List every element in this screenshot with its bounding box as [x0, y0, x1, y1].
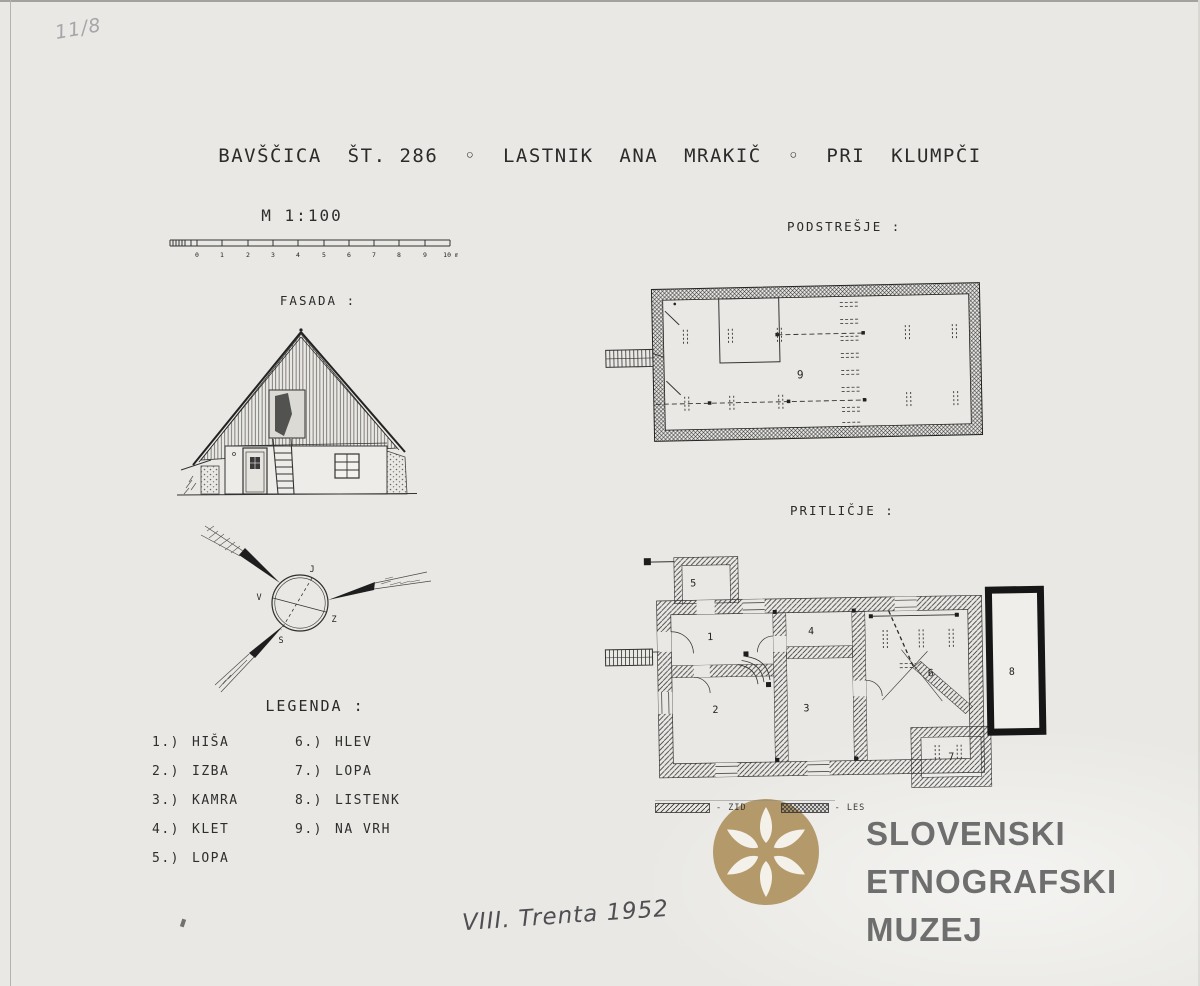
legend-item: 9.)NA VRH: [295, 815, 400, 844]
compass-rose: J V Z S: [195, 518, 435, 698]
legend-item: 5.)LOPA: [152, 844, 239, 873]
scale-tick: 0: [195, 251, 199, 259]
compass-letter-z: Z: [331, 615, 336, 625]
stone-corner-right: [387, 451, 407, 494]
attic-floor-plan: 9: [598, 270, 1003, 462]
legend-item-label: KLET: [192, 822, 229, 837]
legend-column-1: 1.)HIŠA 2.)IZBA 3.)KAMRA 4.)KLET 5.)LOPA: [152, 728, 239, 873]
scale-tick: 7: [372, 251, 376, 259]
room-number-3: 3: [803, 703, 809, 714]
legend-item-num: 6.): [295, 728, 335, 757]
legend-item-num: 9.): [295, 815, 335, 844]
materials-key: - ZID - LES: [655, 803, 865, 813]
compass-arrow-nw: [201, 526, 280, 583]
legend-item-num: 5.): [152, 844, 192, 873]
scale-tick: 8: [397, 251, 401, 259]
materials-key-line: [655, 800, 835, 801]
archive-number-handwritten: 11/8: [53, 14, 103, 44]
compass-arrow-e: [328, 572, 431, 600]
legend-item-label: LOPA: [335, 764, 372, 779]
groundfloor-section-label: PRITLIČJE :: [790, 503, 895, 518]
legend-item: 8.)LISTENK: [295, 786, 400, 815]
legend-item-num: 2.): [152, 757, 192, 786]
facade-section-label: FASADA :: [248, 293, 388, 308]
internal-walls: [671, 609, 974, 763]
legend-item-num: 1.): [152, 728, 192, 757]
ground-floor-plan: 1 2 3 4 5 6 7 8: [598, 543, 1063, 798]
legend-item: 1.)HIŠA: [152, 728, 239, 757]
les-label: - LES: [835, 803, 866, 813]
scanned-drawing-sheet: 11/8 BAVŠČICA ŠT. 286 ◦ LASTNIK ANA MRAK…: [0, 0, 1200, 986]
attic-section-label: PODSTREŠJE :: [787, 219, 901, 234]
room8-timber-walls: [988, 589, 1042, 732]
scale-tick: 9: [423, 251, 427, 259]
scale-tick: 1: [220, 251, 224, 259]
facade-drawing: [155, 318, 435, 503]
legend-item-label: LOPA: [192, 851, 229, 866]
legend-item: 7.)LOPA: [295, 757, 400, 786]
room-number-1: 1: [707, 632, 713, 643]
legend-item-label: LISTENK: [335, 793, 400, 808]
museum-line-1: SLOVENSKI: [866, 810, 1117, 858]
scale-bar: 0 1 2 3 4 5 6 7 8 9 10 m: [158, 231, 458, 263]
room-number-4: 4: [808, 626, 814, 637]
les-swatch: [781, 803, 829, 813]
legend-item: 4.)KLET: [152, 815, 239, 844]
facade-door: [243, 448, 267, 494]
facade-window: [335, 454, 359, 478]
zid-swatch: [655, 803, 710, 813]
field-note-handwritten: VIII. Trenta 1952: [461, 896, 669, 936]
scale-tick: 3: [271, 251, 275, 259]
legend-item: 3.)KAMRA: [152, 786, 239, 815]
legend-title: LEGENDA :: [240, 697, 390, 715]
museum-logo: [712, 798, 820, 906]
compass-arrow-sw: [215, 625, 284, 692]
room-number-6: 6: [928, 668, 934, 679]
zid-label: - ZID: [716, 803, 747, 813]
compass-letter-v: V: [256, 593, 261, 603]
scale-label: M 1:100: [232, 206, 372, 225]
museum-line-3: MUZEJ: [866, 906, 1117, 954]
legend-item-label: KAMRA: [192, 793, 239, 808]
room-number-8: 8: [1009, 667, 1015, 678]
legend-item-num: 3.): [152, 786, 192, 815]
attic-interior: [663, 294, 972, 430]
room-number-7: 7: [948, 752, 954, 763]
paper-edge-top: [0, 0, 1200, 2]
legend-item: 2.)IZBA: [152, 757, 239, 786]
scale-tick: 5: [322, 251, 326, 259]
stone-leanto-left: [181, 460, 219, 494]
ground-ladder: [605, 649, 659, 666]
legend-item-num: 4.): [152, 815, 192, 844]
scale-tick: 2: [246, 251, 250, 259]
legend-column-2: 6.)HLEV 7.)LOPA 8.)LISTENK 9.)NA VRH: [295, 728, 400, 844]
stray-mark: [180, 919, 186, 928]
scale-tick: 10 m: [443, 251, 458, 259]
compass-letter-j: J: [309, 565, 314, 575]
legend-item-label: IZBA: [192, 764, 229, 779]
attic-room-number: 9: [797, 368, 804, 381]
roof-finial: [299, 328, 302, 331]
museum-wordmark: SLOVENSKI ETNOGRAFSKI MUZEJ: [866, 810, 1117, 954]
legend-item: 6.)HLEV: [295, 728, 400, 757]
scale-tick: 6: [347, 251, 351, 259]
room-number-5: 5: [690, 578, 696, 589]
museum-line-2: ETNOGRAFSKI: [866, 858, 1117, 906]
legend-item-label: HLEV: [335, 735, 372, 750]
legend-item-label: HIŠA: [192, 735, 229, 750]
sheet-title: BAVŠČICA ŠT. 286 ◦ LASTNIK ANA MRAKIČ ◦ …: [0, 145, 1200, 167]
room-number-2: 2: [712, 705, 718, 716]
legend-item-num: 8.): [295, 786, 335, 815]
legend-item-num: 7.): [295, 757, 335, 786]
compass-letter-s: S: [278, 636, 283, 646]
annex-walls: [674, 557, 739, 604]
legend-item-label: NA VRH: [335, 822, 391, 837]
scale-tick: 4: [296, 251, 300, 259]
